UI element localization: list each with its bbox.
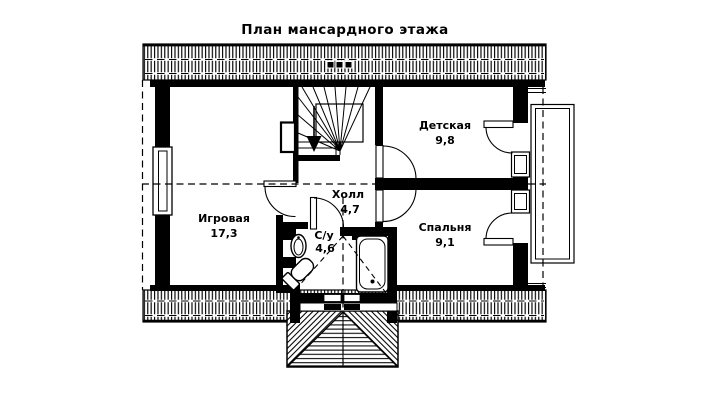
svg-text:Спальня: Спальня (419, 221, 472, 234)
door-leaf-wc (311, 198, 317, 230)
svg-text:4,7: 4,7 (340, 203, 360, 216)
svg-text:Холл: Холл (332, 188, 364, 201)
svg-text:4,6: 4,6 (315, 242, 335, 255)
bathtub (357, 236, 389, 292)
door-leaf-bedroom-hall (376, 190, 383, 222)
svg-text:С/у: С/у (314, 229, 333, 242)
sink (291, 235, 306, 258)
walls (150, 80, 545, 323)
svg-text:17,3: 17,3 (210, 227, 237, 240)
svg-text:Детская: Детская (419, 119, 471, 132)
svg-text:Игровая: Игровая (198, 212, 250, 225)
stair-direction-arrow (307, 106, 322, 152)
staircase (298, 87, 370, 155)
window-left (153, 147, 172, 215)
room-label-nursery: Детская 9,8 (419, 119, 471, 147)
door-leaf-nursery-hall (376, 146, 383, 179)
svg-text:9,8: 9,8 (435, 134, 455, 147)
floorplan-page: План мансардного этажа (0, 0, 718, 400)
floor-plan-drawing: План мансардного этажа (0, 0, 718, 400)
room-label-bedroom: Спальня 9,1 (419, 221, 472, 249)
plan-title: План мансардного этажа (241, 22, 448, 38)
ridge-marks (327, 62, 352, 69)
balcony (528, 89, 574, 288)
door-leaf-nursery-balcony (484, 121, 513, 128)
stair-shaft-niche (281, 123, 295, 153)
door-leaf-bedroom-balcony (484, 239, 513, 246)
window-right-upper (512, 152, 530, 177)
room-label-wc: С/у 4,6 (314, 229, 335, 255)
svg-text:9,1: 9,1 (435, 236, 455, 249)
roof-band-top (143, 44, 546, 80)
room-label-hall: Холл 4,7 (332, 188, 364, 216)
room-label-playroom: Игровая 17,3 (198, 212, 250, 240)
window-right-lower (512, 190, 530, 213)
